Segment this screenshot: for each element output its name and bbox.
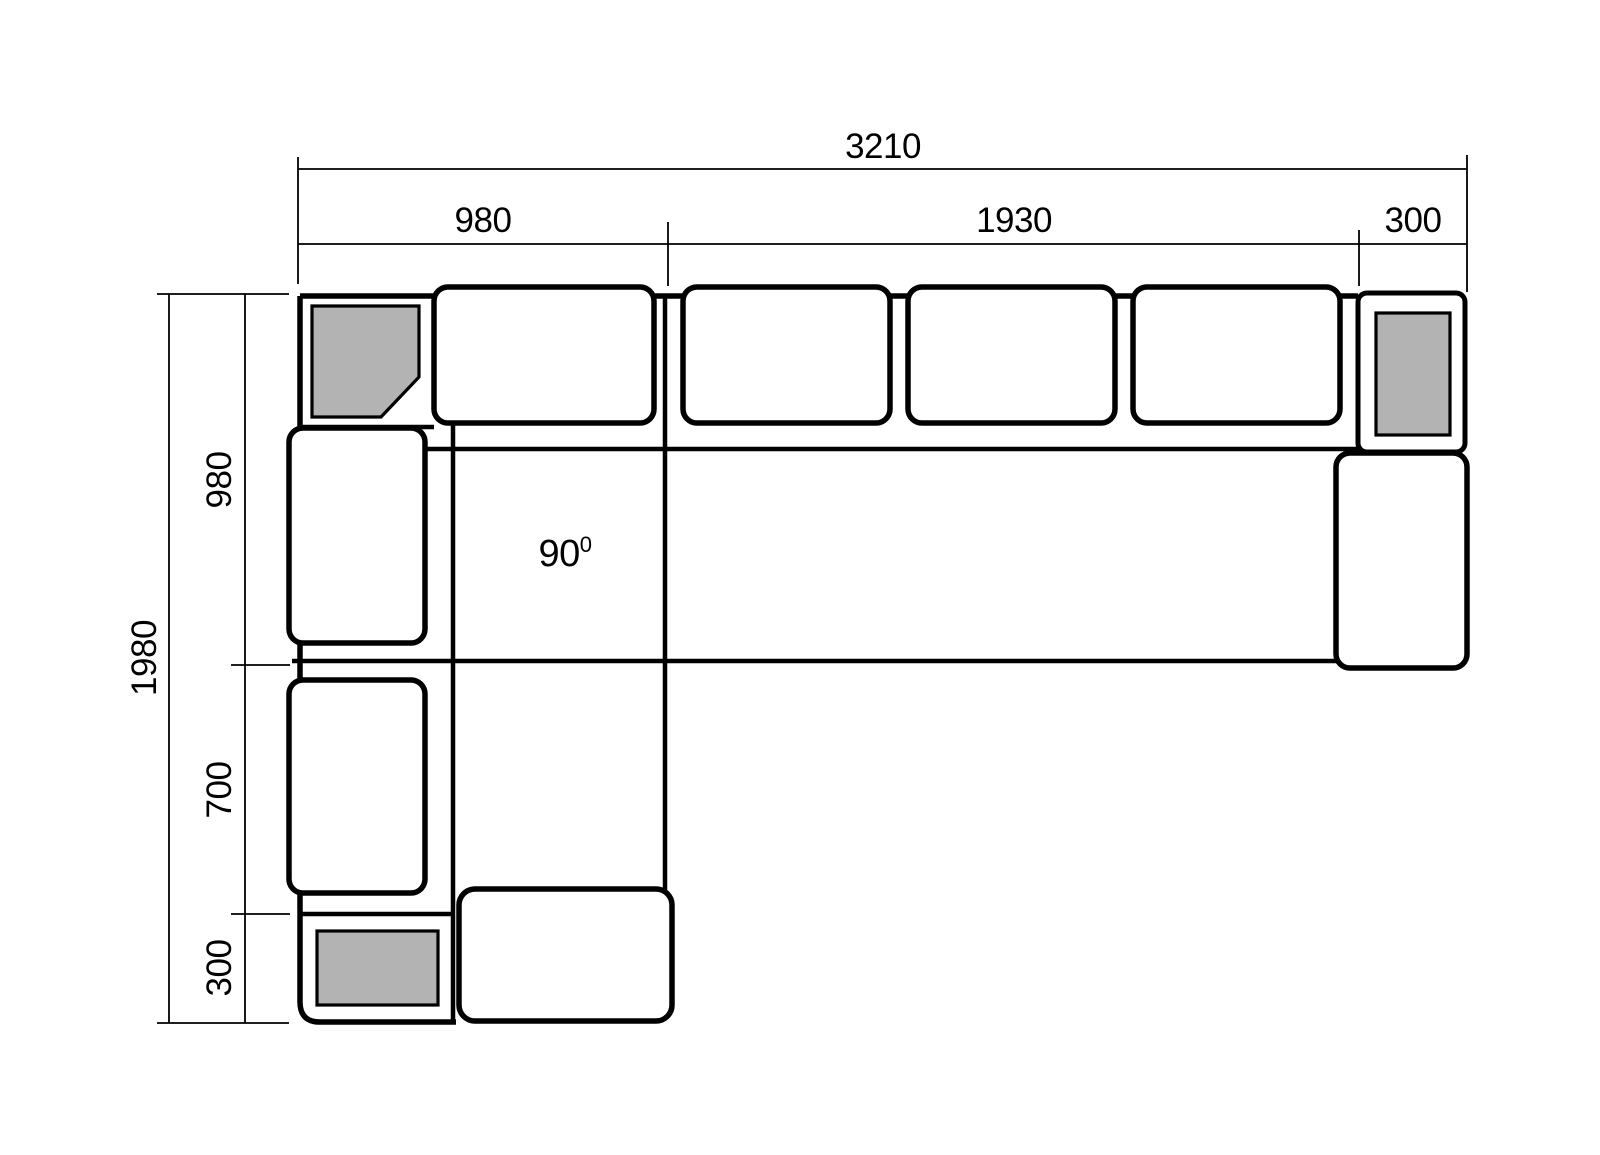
angle-label: 900	[538, 532, 591, 575]
back-cushion-4	[1133, 287, 1340, 423]
drawing-canvas: 3210 980 1930 300 1980 980 700 300	[0, 0, 1600, 1155]
angle-superscript: 0	[580, 532, 592, 557]
angle-value: 90	[538, 533, 579, 575]
right-armrest-pad	[1376, 313, 1450, 435]
label-left-segment-2: 700	[200, 762, 239, 819]
label-top-segment-3: 300	[1385, 201, 1442, 240]
chaise-end-cushion	[459, 889, 672, 1021]
label-total-height: 1980	[125, 620, 164, 696]
right-seat-cushion	[1336, 453, 1467, 668]
back-cushion-1	[434, 287, 654, 423]
cushions	[289, 287, 1467, 1021]
label-left-segment-3: 300	[200, 940, 239, 997]
bottom-armrest-pad	[317, 931, 438, 1005]
label-total-width: 3210	[845, 127, 921, 166]
corner-pad-pentagon	[312, 306, 419, 417]
sofa-dimension-drawing: 3210 980 1930 300 1980 980 700 300	[0, 0, 1600, 1155]
back-cushion-3	[908, 287, 1115, 423]
label-top-segment-2: 1930	[976, 201, 1052, 240]
label-top-segment-1: 980	[455, 201, 512, 240]
label-left-segment-1: 980	[200, 452, 239, 509]
left-back-cushion-2	[289, 680, 425, 893]
left-back-cushion-1	[289, 428, 425, 643]
back-cushion-2	[683, 287, 890, 423]
